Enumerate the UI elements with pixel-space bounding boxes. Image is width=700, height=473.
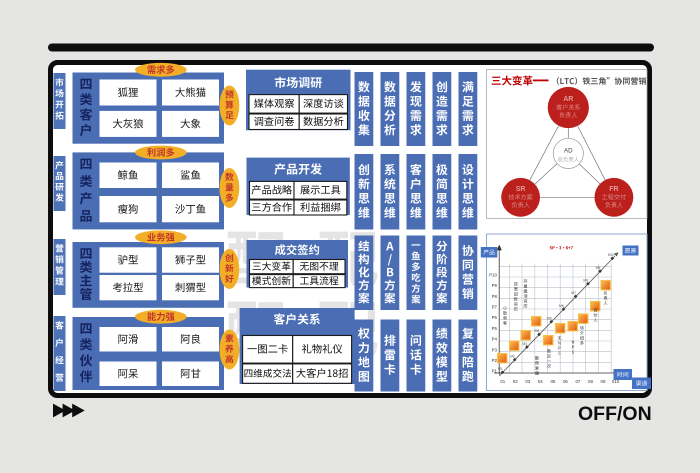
svg-text:08: 08: [588, 379, 593, 384]
svg-text:07: 07: [575, 379, 580, 384]
svg-text:05: 05: [550, 379, 555, 384]
svg-text:M1: M1: [498, 367, 503, 371]
svg-text:M2: M2: [510, 355, 515, 359]
svg-text:P3: P3: [492, 347, 498, 352]
svg-text:OFF/ON: OFF/ON: [578, 403, 652, 425]
svg-text:M6: M6: [559, 304, 564, 308]
svg-text:M5: M5: [547, 317, 552, 321]
svg-text:04: 04: [538, 379, 543, 384]
svg-text:P2: P2: [492, 358, 498, 363]
svg-text:09: 09: [601, 379, 606, 384]
svg-text:P9: P9: [492, 283, 498, 288]
svg-text:M8: M8: [583, 279, 588, 283]
svg-text:FR: FR: [609, 186, 618, 193]
svg-text:P7: P7: [492, 305, 498, 310]
svg-text:03: 03: [525, 379, 530, 384]
svg-text:02: 02: [513, 379, 518, 384]
svg-text:P8: P8: [492, 294, 498, 299]
svg-text:M4: M4: [535, 329, 540, 333]
svg-text:P4: P4: [492, 337, 498, 342]
svg-text:06: 06: [563, 379, 568, 384]
svg-text:SR: SR: [516, 186, 526, 193]
svg-text:P6: P6: [492, 315, 498, 320]
svg-text:AD: AD: [564, 147, 573, 154]
svg-text:M9: M9: [596, 266, 601, 270]
svg-text:M10: M10: [608, 253, 615, 257]
svg-text:P1: P1: [492, 369, 498, 374]
svg-text:AR: AR: [563, 96, 573, 103]
svg-text:01: 01: [500, 379, 505, 384]
svg-text:M3: M3: [522, 342, 527, 346]
svg-text:P10: P10: [489, 273, 497, 278]
svg-text:M7: M7: [571, 291, 576, 295]
svg-text:P5: P5: [492, 326, 498, 331]
